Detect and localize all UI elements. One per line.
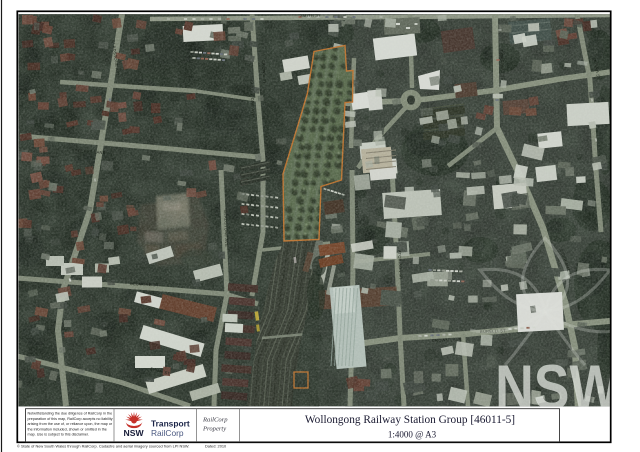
svg-text:Property: Property (202, 426, 226, 433)
svg-text:the information included, show: the information included, shown or omitt… (28, 427, 107, 431)
svg-text:RailCorp: RailCorp (202, 416, 228, 423)
svg-text:RailCorp: RailCorp (151, 428, 184, 438)
svg-text:© State of New South Wales thr: © State of New South Wales through RailC… (17, 444, 189, 449)
svg-text:NSW: NSW (124, 428, 145, 438)
svg-text:arising from the use of, or re: arising from the use of, or reliance upo… (28, 422, 113, 426)
svg-text:preparation of this map, RailC: preparation of this map, RailCorp accept… (28, 417, 113, 421)
svg-text:1:4000 @ A3: 1:4000 @ A3 (388, 430, 437, 440)
svg-text:Wollongong Railway Station Gro: Wollongong Railway Station Group [46011-… (305, 414, 515, 426)
svg-text:Notwithstanding the due dilige: Notwithstanding the due diligence of Rai… (28, 412, 113, 416)
svg-text:map. Use is subject to this di: map. Use is subject to this disclaimer. (28, 433, 89, 437)
svg-text:Dated: 2010: Dated: 2010 (205, 444, 227, 449)
svg-text:Transport: Transport (151, 419, 190, 429)
